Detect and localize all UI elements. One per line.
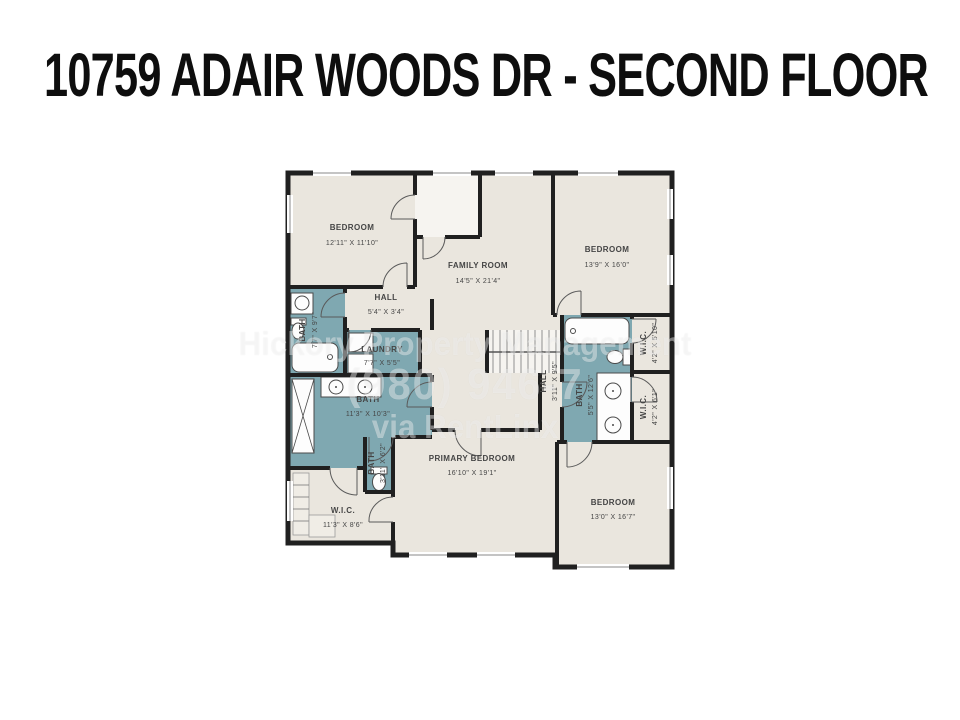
room-dims-water-closet: 3'11" X 6'2" bbox=[380, 443, 387, 483]
room-dims-bath-center: 11'3" X 10'3" bbox=[346, 411, 390, 418]
room-dims-bath-right: 5'5" X 12'6" bbox=[588, 375, 595, 416]
shower-icon bbox=[292, 379, 314, 453]
room-dims-laundry: 7'7" X 5'5" bbox=[364, 360, 400, 367]
room-label-family-room: FAMILY ROOM bbox=[448, 261, 508, 270]
room-label-bedroom-tl: BEDROOM bbox=[330, 223, 375, 232]
room-dims-wic-left: 11'3" X 8'6" bbox=[323, 522, 363, 529]
double-vanity-icon bbox=[321, 377, 381, 397]
room-dims-wic-right-top: 4'2" X 5'10" bbox=[652, 323, 659, 364]
room-label-wic-left: W.I.C. bbox=[331, 506, 355, 515]
room-label-bath-right: BATH bbox=[575, 383, 584, 406]
floor-plan: BEDROOM 12'11" X 11'10" FAMILY ROOM 14'5… bbox=[285, 167, 675, 572]
room-dims-bedroom-tl: 12'11" X 11'10" bbox=[326, 240, 378, 247]
room-dims-wic-right-bottom: 4'2" X 6'1" bbox=[652, 389, 659, 425]
room-label-bedroom-br: BEDROOM bbox=[591, 498, 636, 507]
toilet-icon bbox=[607, 349, 631, 365]
bathtub-icon bbox=[565, 318, 629, 344]
double-vanity-icon bbox=[597, 373, 631, 443]
room-label-hall-top: HALL bbox=[375, 293, 398, 302]
room-label-water-closet: BATH bbox=[367, 451, 376, 474]
room-label-bath-center: BATH bbox=[356, 395, 379, 404]
room-dims-bath-left: 7'7" X 9'7" bbox=[312, 312, 319, 348]
room-label-primary-bedroom: PRIMARY BEDROOM bbox=[429, 454, 515, 463]
sink-icon bbox=[291, 293, 313, 314]
room-dims-hall-right: 3'11" X 9'5" bbox=[552, 361, 559, 401]
floor-plan-drawing: BEDROOM 12'11" X 11'10" FAMILY ROOM 14'5… bbox=[285, 167, 675, 572]
room-label-wic-right-top: W.I.C. bbox=[639, 331, 648, 355]
room-label-wic-right-bottom: W.I.C. bbox=[639, 395, 648, 419]
room-dims-bedroom-tr: 13'9" X 16'0" bbox=[585, 262, 630, 269]
room-label-laundry: LAUNDRY bbox=[361, 345, 403, 354]
room-dims-primary-bedroom: 16'10" X 19'1" bbox=[447, 470, 496, 477]
room-label-bedroom-tr: BEDROOM bbox=[585, 245, 630, 254]
room-dims-family-room: 14'5" X 21'4" bbox=[456, 278, 501, 285]
room-dims-hall-top: 5'4" X 3'4" bbox=[368, 309, 404, 316]
room-label-hall-right: HALL bbox=[539, 370, 548, 393]
page-title: 10759 ADAIR WOODS DR - SECOND FLOOR bbox=[44, 40, 928, 111]
room-dims-bedroom-br: 13'0" X 16'7" bbox=[591, 514, 636, 521]
room-label-bath-left: BATH bbox=[298, 318, 307, 341]
